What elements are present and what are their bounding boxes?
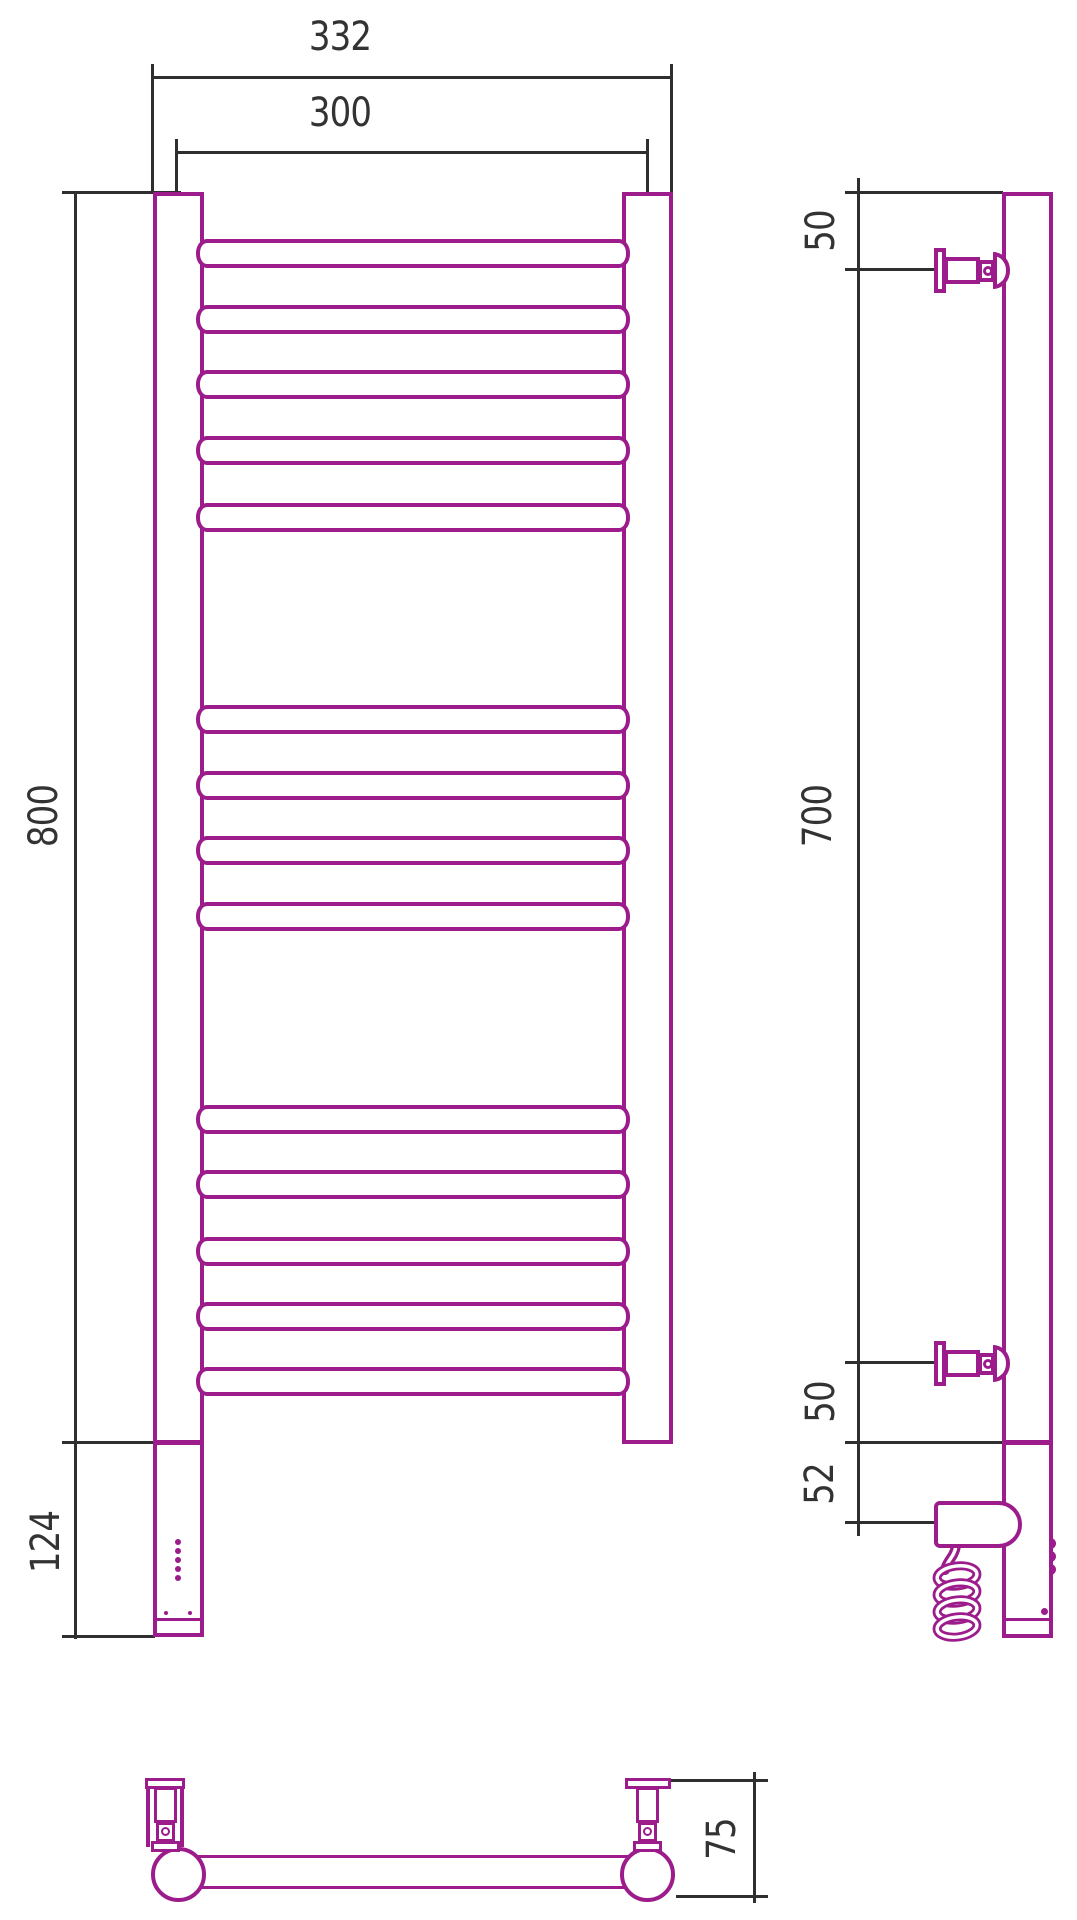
side-heater-seam bbox=[1005, 1618, 1050, 1621]
right-post-section-circle bbox=[620, 1847, 675, 1902]
rung-bar bbox=[196, 1302, 630, 1331]
bottom-rung-tube bbox=[179, 1855, 648, 1889]
bracket-coupler-pin bbox=[983, 266, 993, 276]
heater-control-unit bbox=[934, 1501, 1022, 1548]
dim-label-side-heater-offset: 52 bbox=[797, 1463, 843, 1505]
left-post-section-circle bbox=[151, 1847, 206, 1902]
bracket-coupler-pin bbox=[983, 1359, 993, 1369]
ext-line-300-right bbox=[646, 139, 649, 192]
housing-screw-dot bbox=[164, 1611, 168, 1615]
dim-line-332 bbox=[152, 76, 673, 79]
rung-bar bbox=[196, 1237, 630, 1266]
dim-label-center-width: 300 bbox=[309, 90, 371, 136]
rung-bar bbox=[196, 436, 630, 465]
bracket-coupler-pin bbox=[161, 1827, 170, 1836]
bracket-stem bbox=[636, 1787, 659, 1823]
rung-bar bbox=[196, 1105, 630, 1134]
bracket-base-flange bbox=[151, 1841, 180, 1852]
bracket-body bbox=[944, 257, 980, 284]
rung-bar bbox=[196, 771, 630, 800]
dim-label-side-top-offset: 50 bbox=[798, 210, 844, 252]
dim-label-side-bottom-offset: 50 bbox=[798, 1381, 844, 1423]
rung-bar bbox=[196, 239, 630, 268]
bracket-outer-edge bbox=[146, 1789, 150, 1847]
tick-124-bottom bbox=[62, 1635, 155, 1638]
rung-bar bbox=[196, 370, 630, 399]
tick-75-bottom bbox=[676, 1895, 768, 1898]
tick-75-top bbox=[670, 1779, 768, 1782]
rung-bar bbox=[196, 1170, 630, 1199]
tick-800-bottom bbox=[62, 1441, 155, 1444]
led-indicator-dot bbox=[175, 1557, 181, 1563]
bracket-stem bbox=[154, 1787, 177, 1823]
dim-label-outer-width: 332 bbox=[309, 14, 371, 60]
dim-label-depth: 75 bbox=[699, 1818, 745, 1860]
led-indicator-dot bbox=[175, 1548, 181, 1554]
rung-bar bbox=[196, 305, 630, 334]
side-tick-bracket-top bbox=[845, 268, 937, 271]
dim-line-75 bbox=[753, 1772, 756, 1903]
side-screw-dot bbox=[1041, 1608, 1048, 1615]
side-tick-rail-bottom bbox=[845, 1441, 1003, 1444]
rung-bar bbox=[196, 705, 630, 734]
rung-bar bbox=[196, 1367, 630, 1396]
led-indicator-dot bbox=[175, 1539, 181, 1545]
dim-line-300 bbox=[176, 151, 649, 154]
housing-screw-dot bbox=[188, 1611, 192, 1615]
side-tick-bracket-bottom bbox=[845, 1361, 937, 1364]
ext-line-300-left bbox=[175, 139, 178, 192]
led-indicator-dot bbox=[175, 1566, 181, 1572]
ext-line-332-right bbox=[670, 64, 673, 192]
technical-drawing-canvas: 332 300 800 124 50 700 50 52 75 bbox=[0, 0, 1077, 1920]
led-indicator-dot bbox=[175, 1575, 181, 1581]
side-tick-top bbox=[845, 191, 1003, 194]
dim-label-height: 800 bbox=[21, 785, 67, 847]
heater-housing-front-seam bbox=[156, 1618, 201, 1621]
ext-line-332-left bbox=[151, 64, 154, 192]
bracket-coupler-pin bbox=[643, 1827, 652, 1836]
bracket-outer-edge bbox=[180, 1789, 184, 1847]
dim-line-800-124 bbox=[74, 191, 77, 1639]
side-rail-profile bbox=[1002, 192, 1053, 1444]
bracket-base-flange bbox=[633, 1841, 662, 1852]
dim-label-bracket-span: 700 bbox=[795, 785, 841, 847]
rung-bar bbox=[196, 503, 630, 532]
rung-bar bbox=[196, 836, 630, 865]
side-tick-heater bbox=[845, 1521, 937, 1524]
dim-line-side bbox=[857, 178, 860, 1536]
rung-bar bbox=[196, 902, 630, 931]
bracket-body bbox=[944, 1350, 980, 1377]
dim-label-heater-height: 124 bbox=[23, 1511, 69, 1573]
